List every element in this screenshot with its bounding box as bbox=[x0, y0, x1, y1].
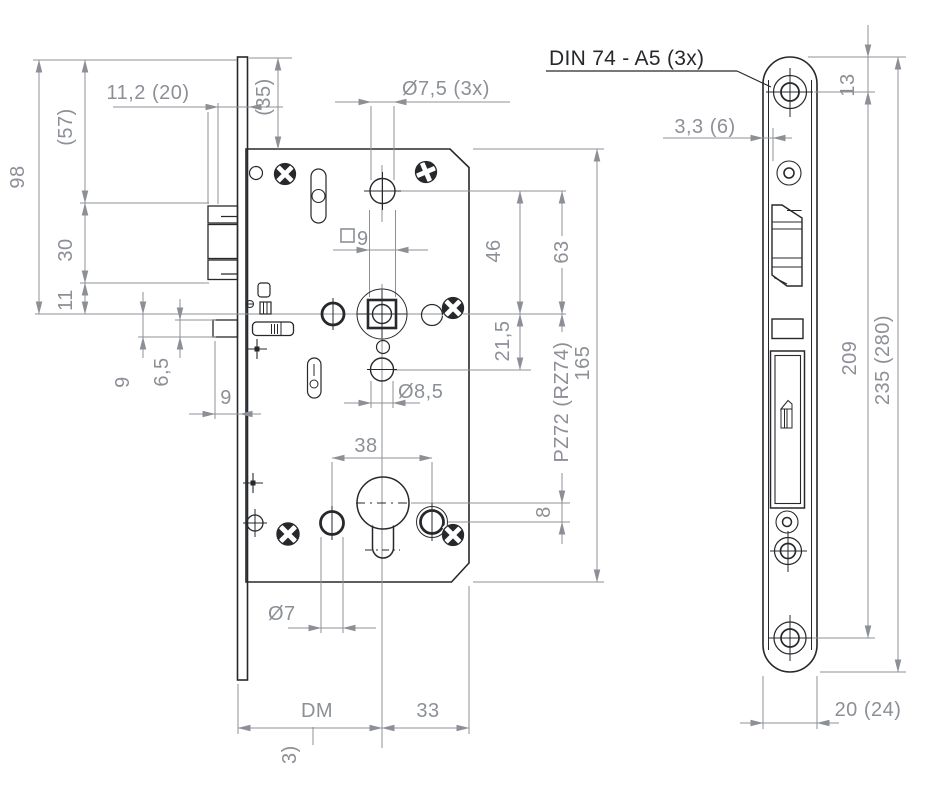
din-callout: DIN 74 - A5 (3x) bbox=[546, 47, 771, 87]
dim-38-label: 38 bbox=[354, 435, 377, 457]
dim-46-label: 46 bbox=[483, 239, 505, 262]
mounting-hole-top bbox=[364, 172, 401, 210]
small-hole bbox=[377, 341, 390, 354]
case-hole-right bbox=[422, 305, 443, 326]
reference-lines-front bbox=[33, 58, 604, 748]
technical-drawing: 11,2 (20) (57) 98 (35) 30 11 Ø7,5 (3x) 9… bbox=[0, 0, 941, 785]
dim-dia-7-5-label: Ø7,5 (3x) bbox=[402, 78, 490, 100]
rivet-cross-marker bbox=[247, 339, 267, 359]
dim-6-5-label: 6,5 bbox=[151, 357, 173, 386]
dimension-lines-front bbox=[39, 58, 597, 728]
screw-icon bbox=[442, 524, 464, 546]
dim-20-24-label: 20 (24) bbox=[835, 699, 902, 721]
screw-icon bbox=[274, 163, 296, 185]
screw-hole-middle bbox=[770, 531, 807, 572]
euro-cylinder-hole bbox=[356, 477, 410, 558]
dim-11-2-label: 11,2 (20) bbox=[106, 82, 189, 104]
fixing-hole-left bbox=[321, 506, 344, 540]
dim-9-left-label: 9 bbox=[112, 376, 134, 388]
screw-icon bbox=[277, 523, 300, 546]
screw-icon bbox=[442, 297, 464, 319]
screw-hole-bottom bbox=[768, 615, 812, 661]
faceplate-front-view: DIN 74 - A5 (3x) 13 3,3 (6) 209 235 (280… bbox=[546, 25, 906, 729]
dim-9-throw-label: 9 bbox=[220, 387, 232, 409]
deadbolt-side bbox=[213, 320, 238, 337]
dim-30-label: 30 bbox=[55, 238, 77, 261]
dim-33-label: 33 bbox=[416, 700, 439, 722]
dim-35-label: (35) bbox=[253, 78, 275, 116]
slot-top bbox=[311, 169, 326, 223]
pin-hole-lower bbox=[776, 511, 798, 533]
square-symbol bbox=[341, 229, 354, 242]
dim-11-label: 11 bbox=[55, 289, 77, 311]
lock-case-details bbox=[243, 158, 464, 558]
dim-209-label: 209 bbox=[839, 341, 861, 376]
screw-hole-top bbox=[766, 68, 813, 117]
pin-hole-upper bbox=[777, 161, 801, 185]
spindle-follower bbox=[357, 289, 407, 339]
deadbolt-cutout bbox=[771, 351, 805, 508]
dim-98-label: 98 bbox=[7, 165, 29, 188]
case-hole-top-left bbox=[250, 167, 263, 180]
dim-square-9-label: 9 bbox=[357, 228, 369, 250]
dim-pz72-label: PZ72 (RZ74) bbox=[551, 341, 573, 462]
lock-case-outline bbox=[246, 149, 469, 582]
dim-8-label: 8 bbox=[533, 506, 555, 518]
auxiliary-cutout bbox=[772, 319, 803, 339]
din-callout-label: DIN 74 - A5 (3x) bbox=[549, 47, 704, 70]
dim-57-label: (57) bbox=[55, 108, 77, 146]
dim-13-label: 13 bbox=[837, 73, 859, 96]
drawing-canvas: 11,2 (20) (57) 98 (35) 30 11 Ø7,5 (3x) 9… bbox=[0, 0, 941, 785]
dim-235-label: 235 (280) bbox=[872, 315, 894, 405]
dimension-labels-front: 11,2 (20) (57) 98 (35) 30 11 Ø7,5 (3x) 9… bbox=[7, 78, 594, 764]
screw-icon bbox=[412, 158, 440, 186]
lock-front-view: 11,2 (20) (57) 98 (35) 30 11 Ø7,5 (3x) 9… bbox=[7, 57, 604, 764]
faceplate-body bbox=[763, 57, 817, 672]
slot-middle bbox=[308, 358, 322, 398]
dim-3-3-label: 3,3 (6) bbox=[674, 116, 735, 138]
latch-bolt-side bbox=[208, 206, 238, 280]
internal-small-parts bbox=[247, 283, 294, 336]
dim-165-label: 165 bbox=[572, 346, 594, 381]
dimension-labels-faceplate: 13 3,3 (6) 209 235 (280) 20 (24) bbox=[674, 73, 901, 721]
latch-bolt-front bbox=[772, 205, 802, 286]
dim-dia-8-5-label: Ø8,5 bbox=[398, 381, 443, 403]
dim-63-label: 63 bbox=[551, 240, 573, 263]
dim-clipped-label: 3) bbox=[279, 745, 301, 764]
dim-dm-label: DM bbox=[301, 700, 333, 722]
dim-dia-7-label: Ø7 bbox=[268, 603, 296, 625]
lock-case-body bbox=[208, 57, 469, 680]
dim-21-5-label: 21,5 bbox=[492, 321, 514, 362]
